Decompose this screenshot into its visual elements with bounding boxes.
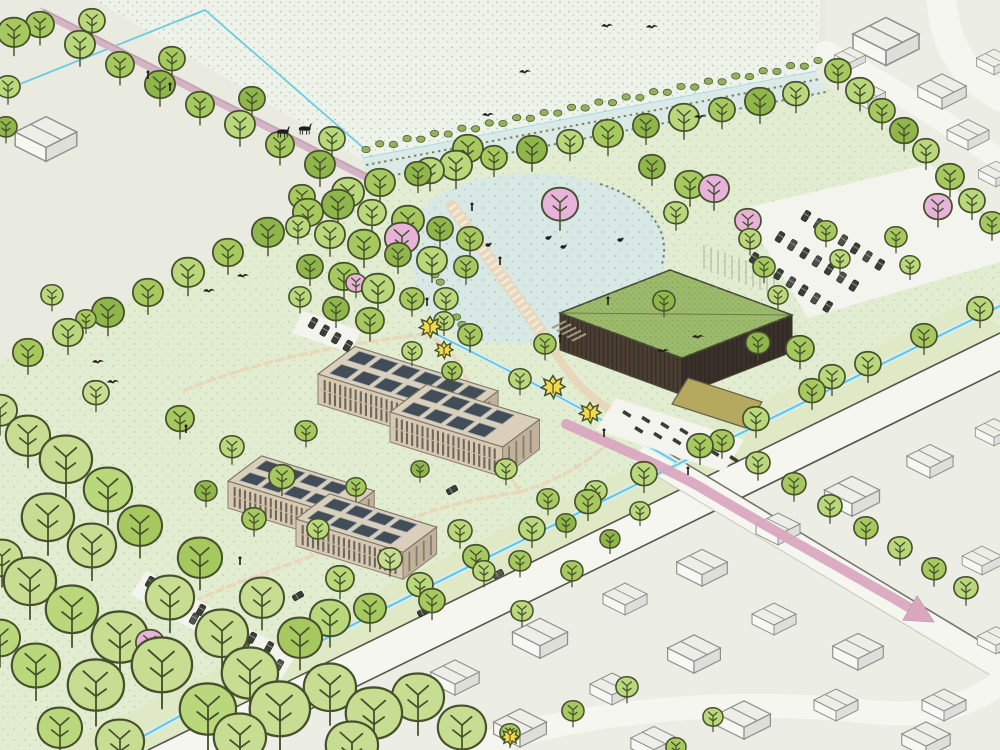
shrub-icon bbox=[389, 141, 397, 147]
shrub-icon bbox=[485, 120, 493, 126]
shrub-icon bbox=[362, 146, 370, 152]
shrub-icon bbox=[704, 78, 712, 84]
shrub-icon bbox=[376, 141, 384, 147]
shrub-icon bbox=[718, 79, 726, 85]
shrub-icon bbox=[513, 115, 521, 121]
shrub-icon bbox=[526, 115, 534, 121]
shrub-icon bbox=[745, 73, 753, 79]
shrub-icon bbox=[608, 100, 616, 106]
tree-icon bbox=[96, 720, 144, 750]
shrub-icon bbox=[814, 57, 822, 63]
masterplan-illustration bbox=[0, 0, 1000, 750]
yellow-shrub-icon bbox=[435, 341, 453, 358]
shrub-icon bbox=[677, 83, 685, 89]
yellow-shrub-icon bbox=[419, 317, 441, 338]
shrub-icon bbox=[436, 279, 444, 285]
shrub-icon bbox=[458, 125, 466, 131]
shrub-icon bbox=[786, 62, 794, 68]
shrub-icon bbox=[417, 136, 425, 142]
tree-icon bbox=[438, 706, 486, 750]
shrub-icon bbox=[567, 104, 575, 110]
shrub-icon bbox=[595, 99, 603, 105]
shrub-icon bbox=[636, 94, 644, 100]
shrub-icon bbox=[732, 73, 740, 79]
shrub-icon bbox=[800, 63, 808, 69]
tree-icon bbox=[214, 713, 266, 750]
shrub-icon bbox=[759, 68, 767, 74]
yellow-shrub-icon bbox=[501, 728, 519, 745]
shrub-icon bbox=[540, 109, 548, 115]
shrub-icon bbox=[403, 135, 411, 141]
yellow-shrub-icon bbox=[579, 403, 601, 424]
tree-icon bbox=[666, 738, 686, 750]
shrub-icon bbox=[430, 130, 438, 136]
shrub-icon bbox=[499, 120, 507, 126]
shrub-icon bbox=[581, 105, 589, 111]
shrub-icon bbox=[444, 131, 452, 137]
shrub-icon bbox=[663, 89, 671, 95]
shrub-icon bbox=[773, 68, 781, 74]
shrub-icon bbox=[622, 94, 630, 100]
shrub-icon bbox=[554, 110, 562, 116]
shrub-icon bbox=[691, 84, 699, 90]
shrub-icon bbox=[649, 89, 657, 95]
shrub-icon bbox=[471, 126, 479, 132]
yellow-shrub-icon bbox=[541, 376, 565, 399]
masterplan-canvas bbox=[0, 0, 1000, 750]
